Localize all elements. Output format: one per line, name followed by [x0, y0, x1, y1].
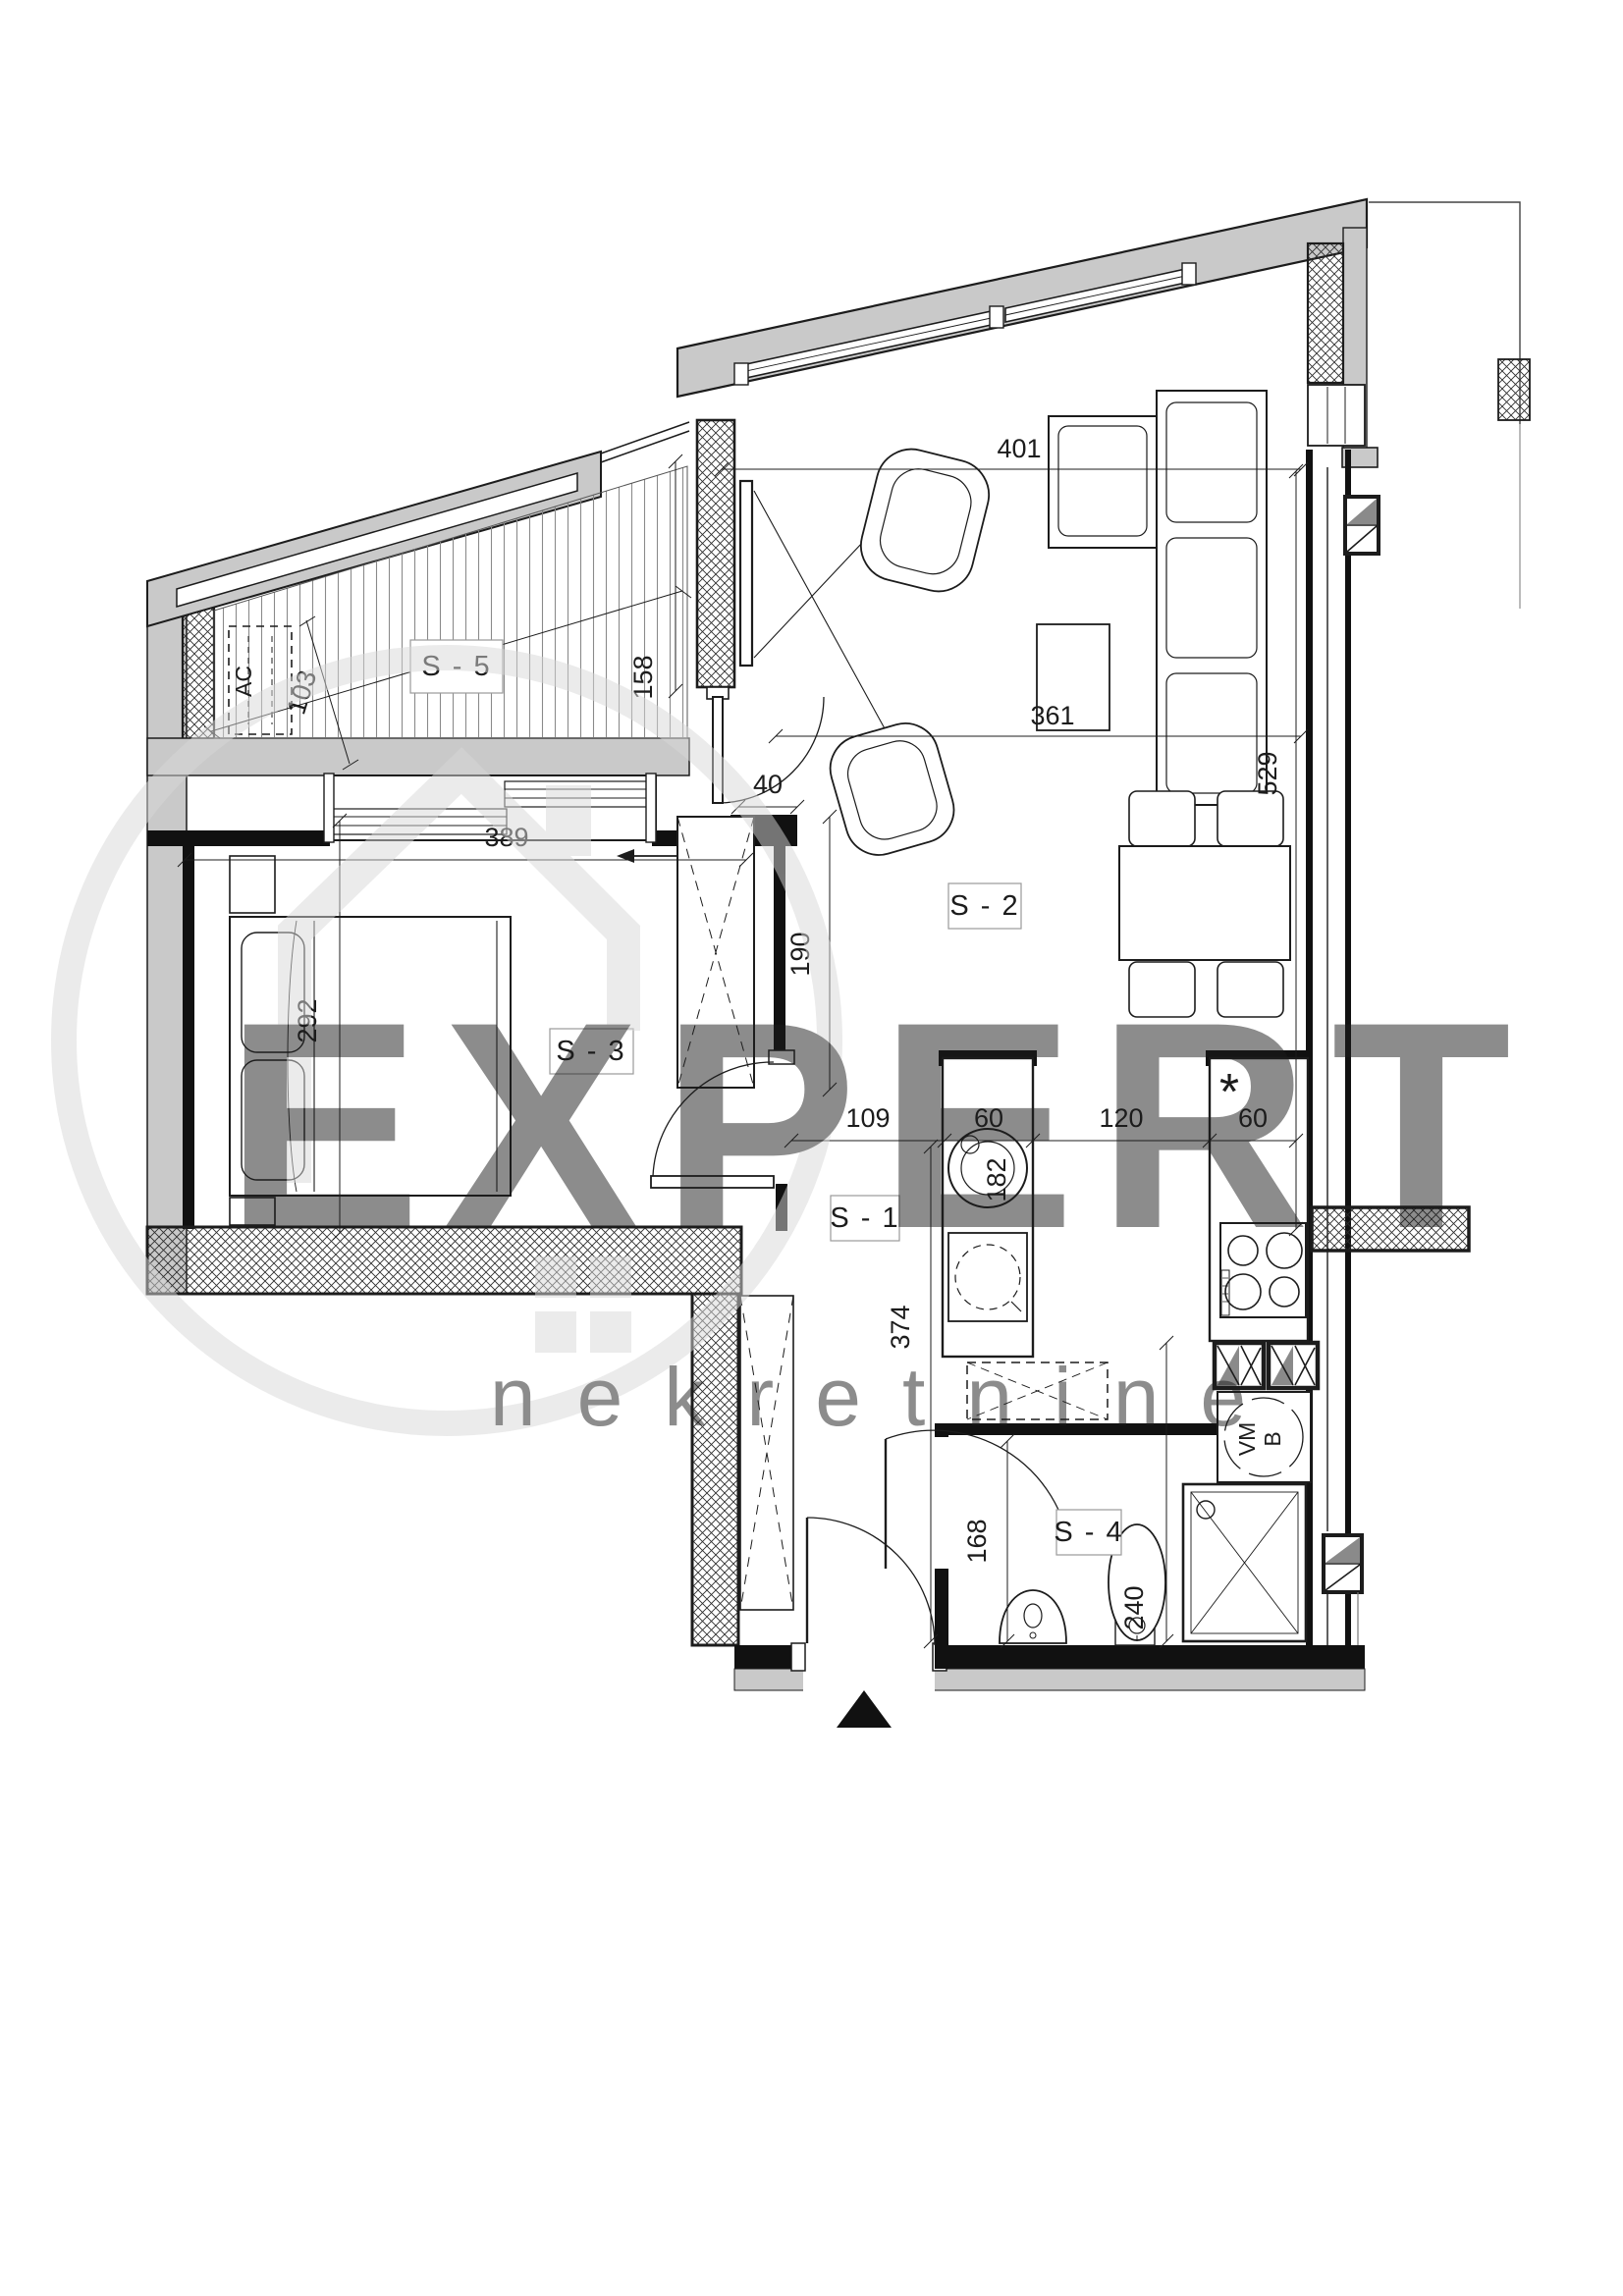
dim-terrace-door: 40 — [753, 770, 783, 799]
hall-west-wall — [692, 1294, 738, 1645]
watermark-tagline: nekretnine — [490, 1351, 1287, 1443]
shaft-marker-top — [1345, 497, 1379, 554]
dining-chair — [1129, 791, 1195, 846]
room-label-s2: S - 2 — [949, 890, 1019, 922]
shower — [1183, 1484, 1306, 1641]
right-wall-window — [1308, 385, 1365, 446]
dim-living-bottom: 361 — [1030, 701, 1074, 730]
insulation-block-left — [183, 595, 214, 744]
dim-living-top: 401 — [997, 434, 1041, 463]
dim-living-right: 529 — [1253, 751, 1282, 795]
dim-bathroom-length: 240 — [1119, 1585, 1149, 1629]
dim-hall-length: 374 — [886, 1305, 915, 1349]
dining-table — [1119, 846, 1290, 960]
floor-plan-svg: 401 361 529 319 103 158 40 389 292 190 1… — [0, 0, 1623, 2296]
insulation-block-right — [1308, 243, 1343, 383]
dining-chair — [1217, 791, 1283, 846]
hall-closet — [740, 1296, 793, 1610]
floor-plan-page: 401 361 529 319 103 158 40 389 292 190 1… — [0, 0, 1623, 2296]
insulation-column-terrace — [697, 420, 734, 687]
watermark-brand: EXPERT — [225, 960, 1533, 1290]
ac-label: AC — [231, 666, 256, 697]
room-label-s4: S - 4 — [1054, 1517, 1123, 1548]
dim-bathroom-width: 168 — [962, 1519, 992, 1563]
